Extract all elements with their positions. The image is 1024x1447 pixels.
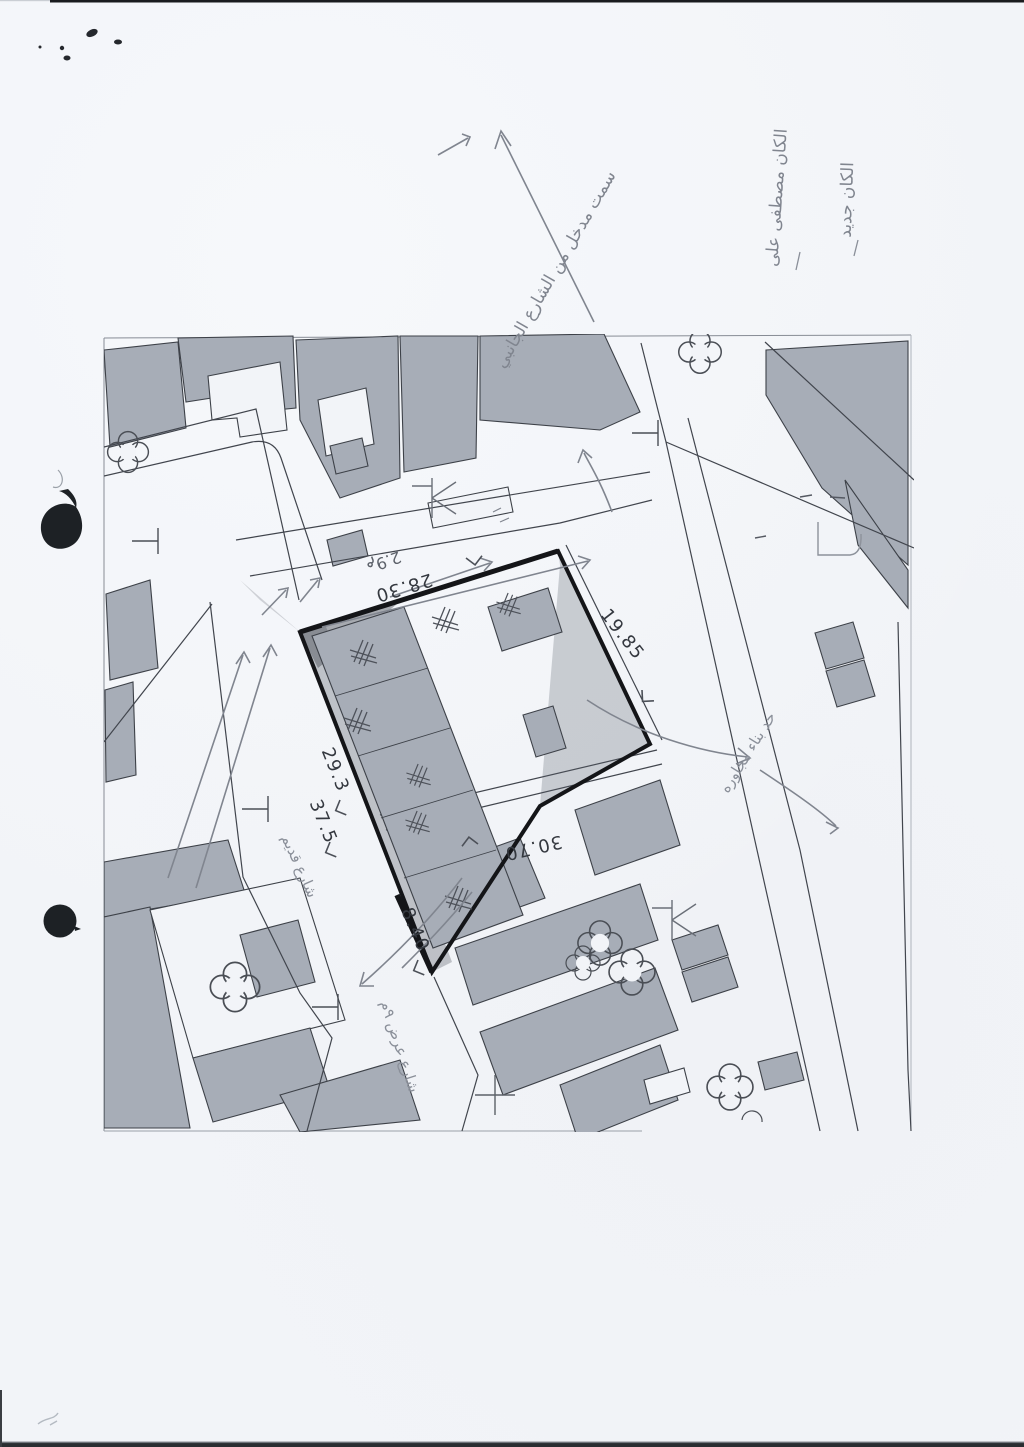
dimension-southeast: 30.70 [502, 830, 564, 864]
utility-pole-icon [632, 420, 658, 446]
house-outline [208, 362, 287, 437]
utility-pole-icon [242, 796, 268, 822]
dimension-west-lower: 37.5 [305, 797, 342, 848]
building [105, 682, 136, 782]
courtyard [150, 878, 345, 1058]
building [766, 341, 908, 565]
building [106, 580, 158, 680]
utility-pole-icon [132, 528, 158, 554]
site-plan-scan: 28.30 19.85 30.70 8.40 29.3 37.5 2.9م ال… [0, 0, 1024, 1447]
building [575, 780, 680, 875]
building [327, 530, 368, 566]
handwritten-note-top-right-1: الكان جديد [836, 162, 859, 238]
tree-icon [707, 1064, 753, 1110]
building [488, 588, 562, 651]
ink-blot-top [41, 470, 82, 549]
building-footprints [104, 334, 908, 1140]
corner-smudge [38, 1413, 58, 1425]
ink-blot-bottom [44, 905, 82, 938]
handwritten-note-top-right-2: الكان مصطفى على [762, 128, 792, 267]
ink-specks [39, 27, 123, 60]
tree-icon [679, 331, 722, 374]
tick-marks [755, 495, 845, 538]
width-note: 2.9م [364, 547, 404, 577]
signature-dashes [796, 240, 858, 270]
scanned-page: 28.30 19.85 30.70 8.40 29.3 37.5 2.9م ال… [0, 0, 1024, 1447]
building [400, 336, 478, 472]
building [104, 342, 186, 447]
handwritten-note-east: حد بناء مجاوره [716, 709, 780, 796]
building [758, 1052, 804, 1090]
tree-icon [742, 1111, 762, 1122]
scan-edge-artifacts [0, 0, 1024, 1447]
